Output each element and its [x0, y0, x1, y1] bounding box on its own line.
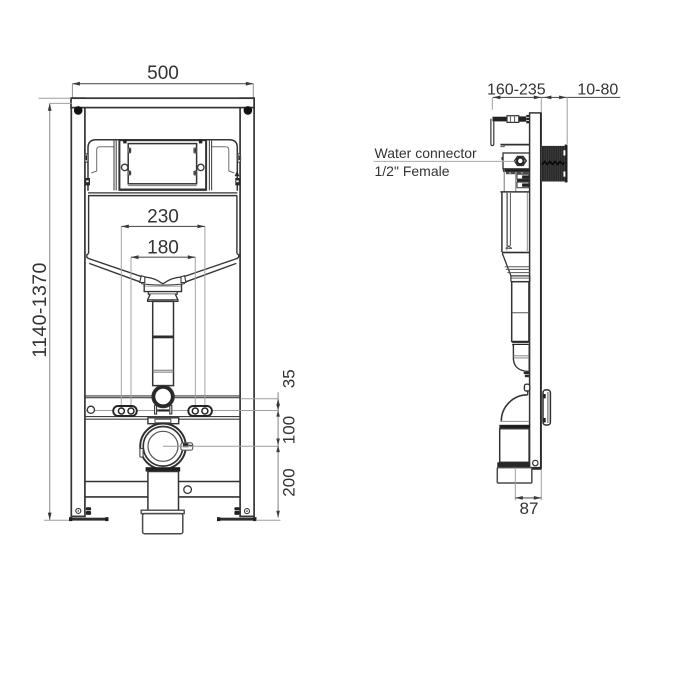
svg-text:180: 180: [147, 237, 179, 258]
svg-text:Water connector: Water connector: [375, 145, 478, 161]
svg-text:87: 87: [520, 499, 539, 518]
svg-text:35: 35: [280, 369, 299, 388]
svg-text:200: 200: [280, 468, 299, 496]
svg-text:1140-1370: 1140-1370: [29, 262, 51, 357]
svg-text:230: 230: [147, 206, 179, 227]
svg-text:10-80: 10-80: [577, 81, 618, 98]
svg-text:160-235: 160-235: [487, 81, 546, 98]
svg-text:500: 500: [147, 63, 179, 84]
svg-text:100: 100: [280, 416, 299, 444]
svg-text:1/2" Female: 1/2" Female: [375, 163, 450, 179]
